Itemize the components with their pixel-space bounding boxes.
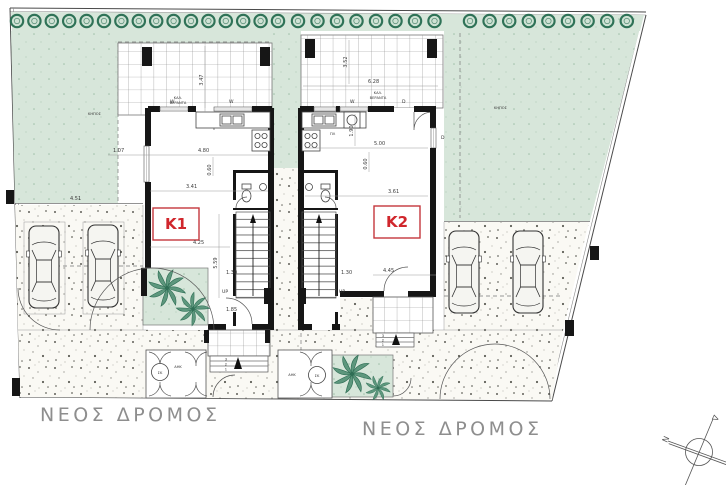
toilet-k1 [242,190,251,202]
dim-k1-kitchen-w: 4.80 [198,148,209,154]
door-label: D [441,135,445,141]
car-icon [86,225,121,307]
tree-icon [133,15,145,27]
tree-icon [115,15,127,27]
dim-k2-wall: 0.60 [363,158,369,169]
step-number: 2 [225,363,227,367]
dim-k1-front-w: 4.25 [193,240,204,246]
tree-icon [237,15,249,27]
dim-k2-living-w: 3.61 [388,189,399,195]
porch-k1: 3 2 1 [204,330,270,372]
dim-k2-veranda-w: 6.28 [368,79,379,85]
step-number: 1 [382,343,384,347]
k2-label: K2 [386,213,408,231]
window-label: W [229,99,234,105]
tree-icon [311,15,323,27]
basin-k2 [306,184,313,191]
window-label: W [170,99,175,105]
garden-strip-center [272,31,301,168]
stairs-k2 [302,212,336,298]
tree-icon [220,15,232,27]
step-number: 3 [225,358,227,362]
meter-label: ΑΗΚ [288,373,296,377]
tree-icon [272,15,284,27]
window-label: W [350,99,355,105]
dim-parking-left: 4.51 [70,196,81,202]
tree-icon [331,15,343,27]
tree-icon [28,15,40,27]
garden-right [444,16,643,221]
dim-k2-stair: 1.30 [341,270,352,276]
manhole-label: ΣΚ [158,371,163,375]
tree-icon [150,15,162,27]
step-number: 2 [382,339,384,343]
tree-icon [185,15,197,27]
meter-label: ΑΗΚ [174,365,182,369]
tree-icon [63,15,75,27]
tree-icon [601,15,613,27]
tree-icon [409,15,421,27]
dim-k2-front-w: 4.45 [383,268,394,274]
garden-left-label: ΚΗΠΟΣ [88,112,102,116]
tree-icon [202,15,214,27]
stairs-k1 [236,212,270,298]
door-label: D [402,99,406,105]
road-label-left: ΝΕΟΣ ΔΡΟΜΟΣ [40,404,220,426]
stove-k1 [252,130,270,151]
veranda-label-k1-1: ΚΑΛ. [174,96,182,100]
road-label-right: ΝΕΟΣ ΔΡΟΜΟΣ [362,418,542,440]
dim-k1-entry: 1.85 [226,307,237,313]
tree-icon [46,15,58,27]
patio-k1 [141,268,215,331]
tree-icon [389,15,401,27]
up-label-k2: UP [339,289,345,295]
garden-left [11,31,118,203]
washer-label: ΠΛ [330,132,336,136]
car-icon [447,231,482,313]
tree-icon [621,15,633,27]
tree-icon [464,15,476,27]
tree-icon [503,15,515,27]
veranda-label-k2-1: ΚΑΛ. [374,91,382,95]
dim-k1-living-w: 3.41 [186,184,197,190]
compass-letter-d: Δ [710,414,721,423]
dim-k2-veranda-h: 3.52 [343,56,349,67]
tree-icon [523,15,535,27]
north-compass: Δ N A [660,414,726,485]
tree-icon [80,15,92,27]
party-strip [274,168,298,330]
tree-icon [428,15,440,27]
car-icon [27,226,62,308]
tree-icon [542,15,554,27]
unit-k2: ΠΛ K2 [298,106,436,330]
tree-icon [254,15,266,27]
dim-k2-kitchen-d: 1.90 [349,125,355,136]
garden-right-label: ΚΗΠΟΣ [494,106,508,110]
tree-icon [370,15,382,27]
dim-k1-stair: 1.30 [226,270,237,276]
tree-icon [483,15,495,27]
dim-k1-depth: 5.59 [213,257,219,268]
step-number: 1 [225,368,227,372]
manhole-label: ΣΚ [315,374,320,378]
up-label-k1: UP [222,289,228,295]
utility-gate-k2: ΑΗΚ ΣΚ [278,350,332,398]
floor-plan: ΚΗΠΟΣ ΚΗΠΟΣ [0,0,726,485]
utility-gate-k1: ΣΚ ΑΗΚ [146,350,207,398]
tree-icon [98,15,110,27]
tree-icon [562,15,574,27]
dim-k2-kitchen-w: 5.00 [374,141,385,147]
tree-icon [292,15,304,27]
compass-letter-n: N [660,434,671,443]
dim-k1-veranda-h: 3.47 [199,74,205,85]
veranda-label-k2-2: ΒΕΡΑΝΤΑ [370,96,387,100]
dim-k1-offset: 1.07 [113,148,124,154]
dim-k1-wall: 0.60 [207,164,213,175]
k1-label: K1 [165,215,187,233]
step-number: 3 [382,334,384,338]
basin-k1 [260,184,267,191]
veranda-k1 [118,43,272,115]
site-plan-svg: ΚΗΠΟΣ ΚΗΠΟΣ [0,0,726,485]
tree-icon [350,15,362,27]
tree-icon [581,15,593,27]
tree-icon [167,15,179,27]
car-icon [511,231,546,313]
tree-icon [11,15,23,27]
